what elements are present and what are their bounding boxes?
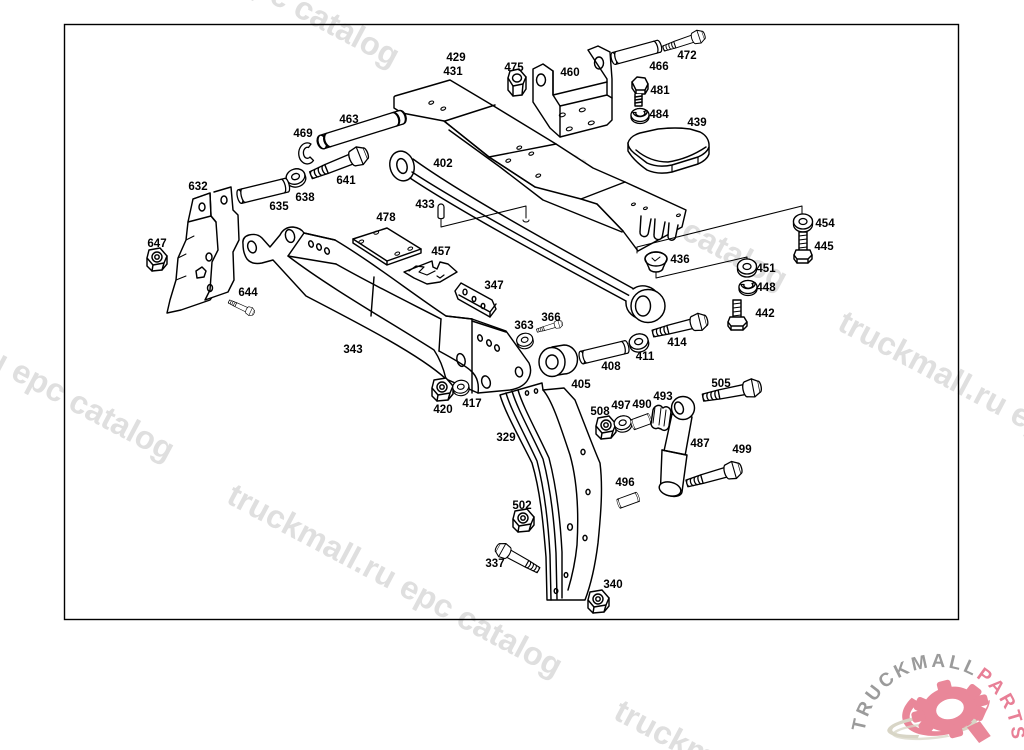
svg-text:502: 502 — [512, 500, 531, 512]
svg-text:484: 484 — [649, 109, 669, 121]
svg-text:490: 490 — [632, 399, 651, 411]
svg-text:439: 439 — [687, 117, 706, 129]
svg-text:632: 632 — [188, 181, 207, 193]
svg-text:451: 451 — [756, 263, 776, 275]
svg-text:454: 454 — [815, 218, 835, 230]
svg-text:442: 442 — [755, 308, 774, 320]
svg-text:337: 337 — [485, 558, 504, 570]
svg-text:497: 497 — [611, 400, 630, 412]
svg-text:460: 460 — [560, 67, 579, 79]
svg-text:641: 641 — [336, 175, 356, 187]
svg-text:508: 508 — [590, 406, 610, 418]
svg-text:493: 493 — [653, 391, 672, 403]
svg-text:417: 417 — [462, 398, 481, 410]
svg-text:487: 487 — [690, 438, 709, 450]
svg-text:463: 463 — [339, 114, 358, 126]
svg-text:363: 363 — [514, 320, 533, 332]
svg-text:343: 343 — [343, 344, 362, 356]
svg-text:429: 429 — [446, 52, 465, 64]
svg-text:475: 475 — [504, 62, 524, 74]
svg-text:405: 405 — [571, 379, 591, 391]
svg-text:340: 340 — [603, 579, 622, 591]
svg-text:433: 433 — [415, 199, 434, 211]
svg-text:448: 448 — [756, 282, 776, 294]
svg-text:329: 329 — [496, 432, 515, 444]
svg-text:420: 420 — [433, 404, 452, 416]
svg-text:431: 431 — [443, 66, 463, 78]
svg-text:478: 478 — [376, 212, 396, 224]
svg-text:347: 347 — [484, 280, 503, 292]
svg-text:496: 496 — [615, 477, 634, 489]
svg-text:445: 445 — [814, 241, 834, 253]
svg-text:466: 466 — [649, 61, 668, 73]
svg-text:647: 647 — [147, 238, 166, 250]
svg-text:481: 481 — [650, 85, 670, 97]
svg-text:638: 638 — [295, 192, 315, 204]
svg-text:499: 499 — [732, 444, 751, 456]
svg-text:414: 414 — [667, 337, 687, 349]
svg-text:469: 469 — [293, 128, 312, 140]
svg-text:366: 366 — [541, 312, 560, 324]
svg-text:505: 505 — [711, 378, 731, 390]
svg-text:644: 644 — [238, 287, 258, 299]
svg-text:411: 411 — [636, 351, 655, 363]
svg-text:402: 402 — [433, 158, 452, 170]
svg-text:472: 472 — [677, 50, 696, 62]
svg-text:635: 635 — [269, 201, 289, 213]
svg-text:457: 457 — [431, 246, 450, 258]
svg-text:436: 436 — [670, 254, 689, 266]
svg-text:408: 408 — [601, 361, 621, 373]
